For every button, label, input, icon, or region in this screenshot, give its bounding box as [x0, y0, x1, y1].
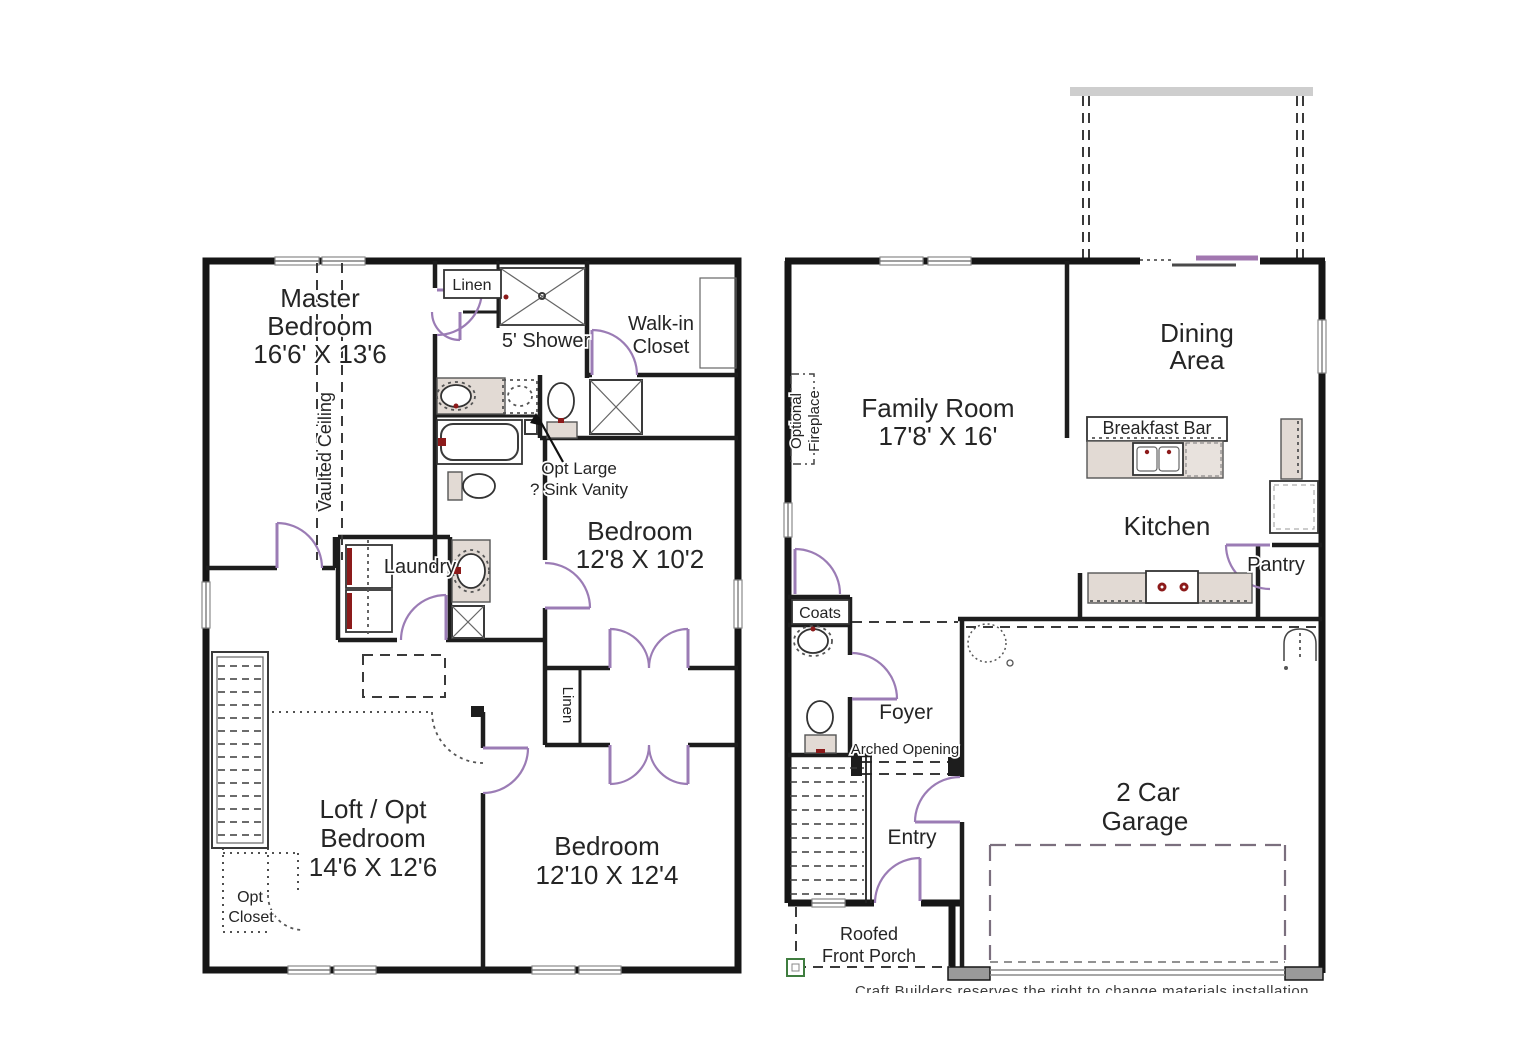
hall-toilet	[448, 472, 495, 500]
vaulted-ceiling-label: Vaulted Ceiling	[315, 392, 335, 512]
hall-dashed-feature	[363, 655, 445, 697]
svg-text:Front Porch: Front Porch	[822, 946, 916, 966]
linen-mid-label: Linen	[559, 687, 576, 724]
linen-top-label: Linen	[452, 277, 491, 294]
bedroom2-door	[483, 748, 528, 793]
arched-opening-label: Arched Opening	[851, 741, 959, 758]
svg-text:Closet: Closet	[633, 336, 690, 358]
bedroom2-dims: 12'10 X 12'4	[536, 860, 679, 890]
svg-text:Bedroom: Bedroom	[320, 823, 426, 853]
shower-label: 5' Shower	[502, 330, 591, 352]
water-heater	[968, 624, 1013, 666]
half-bath-toilet	[805, 701, 836, 753]
kitchen-range-counter	[1088, 571, 1252, 603]
porch-post	[787, 959, 804, 976]
kitchen-label: Kitchen	[1124, 511, 1211, 541]
svg-text:? Sink Vanity: ? Sink Vanity	[530, 480, 628, 499]
pantry-label: Pantry	[1247, 554, 1305, 576]
svg-text:Bedroom: Bedroom	[267, 311, 373, 341]
kitchen-side-counter	[1281, 419, 1302, 479]
garage-entry-door	[915, 777, 960, 822]
hall-bath-door	[401, 595, 446, 640]
svg-text:Closet: Closet	[228, 909, 274, 926]
bedroom1-label: Bedroom	[587, 516, 693, 546]
bathtub	[437, 420, 537, 464]
master-bedroom-dims: 16'6' X 13'6	[253, 339, 386, 369]
walkin-closet-door	[592, 330, 637, 375]
dishwasher	[1186, 443, 1221, 476]
laundry-label: Laundry	[384, 556, 456, 578]
floor-plan-page: Linen Master Bedroom 16'6' X 13'6 Vaulte…	[0, 0, 1536, 1047]
coats-label: Coats	[799, 605, 841, 622]
garage-door-clearance	[990, 845, 1285, 960]
garage-label: 2 Car	[1116, 777, 1180, 807]
master-toilet	[547, 383, 577, 438]
optional-fireplace-label: Optional	[788, 393, 805, 449]
svg-text:Fireplace: Fireplace	[806, 390, 823, 452]
bedroom1-dims: 12'8 X 10'2	[576, 544, 704, 574]
closet-double-doors-top	[610, 629, 688, 668]
walkin-closet-shelf	[700, 278, 736, 368]
refrigerator	[1270, 481, 1318, 533]
deck-roof-edge	[1070, 87, 1313, 96]
family-room-dims: 17'8' X 16'	[879, 421, 998, 451]
opt-vanity-note: Opt Large	[541, 459, 617, 478]
closet-double-doors-bottom	[610, 745, 688, 784]
bedroom2-label: Bedroom	[554, 831, 660, 861]
loft-optional-door	[432, 712, 483, 763]
staircase-lower	[790, 757, 871, 903]
shower-stall	[500, 268, 585, 325]
first-floor-plan: Family Room 17'8' X 16' Dining Area Brea…	[783, 87, 1328, 980]
washer-dryer	[346, 540, 392, 635]
breakfast-bar-label: Breakfast Bar	[1102, 418, 1211, 438]
master-vanity	[437, 378, 537, 414]
kitchen-sink	[1133, 443, 1183, 475]
porch-label: Roofed	[840, 924, 898, 944]
second-floor-plan: Linen Master Bedroom 16'6' X 13'6 Vaulte…	[201, 256, 744, 976]
half-bath-door	[852, 653, 897, 699]
master-bedroom-door	[277, 523, 322, 568]
family-room-label: Family Room	[861, 393, 1014, 423]
coats-closet-door	[795, 549, 840, 594]
loft-label: Loft / Opt	[320, 794, 428, 824]
floor-plan-image: Linen Master Bedroom 16'6' X 13'6 Vaulte…	[0, 0, 1536, 1047]
svg-text:Area: Area	[1170, 345, 1225, 375]
entry-label: Entry	[887, 826, 937, 849]
dining-area-label: Dining	[1160, 318, 1234, 348]
svg-text:Garage: Garage	[1102, 806, 1189, 836]
front-door	[875, 858, 920, 903]
half-bath-sink	[794, 626, 832, 656]
hall-vanity	[452, 540, 490, 602]
water-softener	[1284, 629, 1316, 670]
master-bedroom-label: Master	[280, 283, 360, 313]
interior-walls	[788, 261, 1322, 973]
rear-deck-outline	[1070, 87, 1313, 258]
hall-chase-box	[452, 606, 484, 638]
opt-closet-label: Opt	[237, 889, 263, 906]
disclaimer-caption: Craft Builders reserves the right to cha…	[812, 984, 1352, 993]
walkin-closet-label: Walk-in	[628, 313, 694, 335]
loft-dims: 14'6 X 12'6	[309, 852, 437, 882]
foyer-label: Foyer	[879, 701, 933, 724]
linen-chase-box	[590, 380, 642, 434]
